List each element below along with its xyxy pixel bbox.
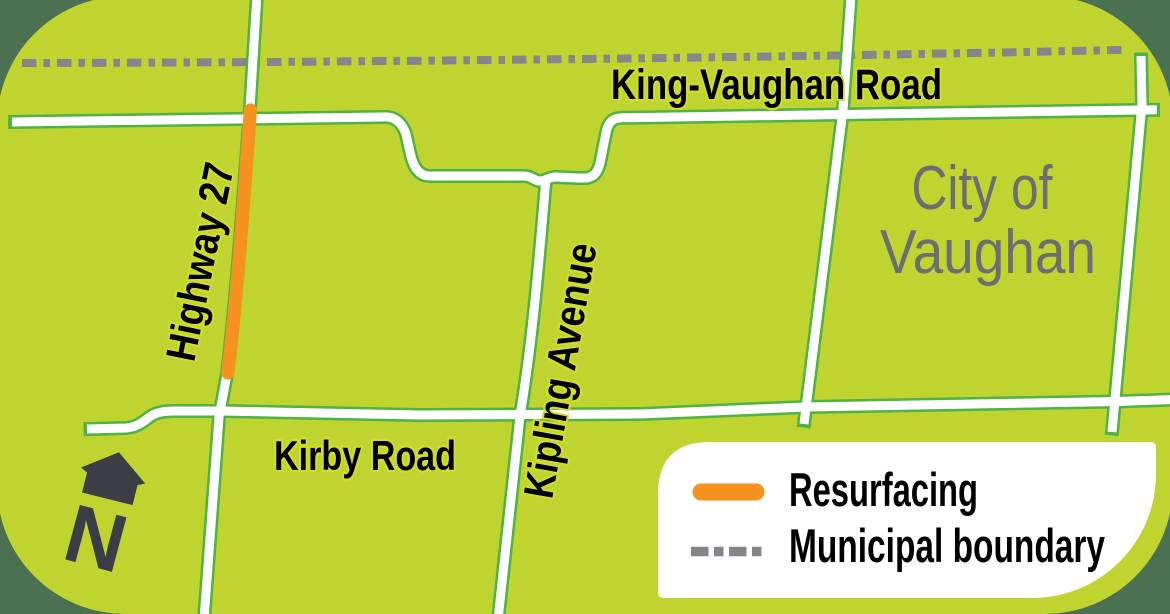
svg-text:Vaughan: Vaughan xyxy=(880,218,1096,287)
svg-text:Municipal boundary: Municipal boundary xyxy=(789,519,1105,572)
svg-text:Resurfacing: Resurfacing xyxy=(789,463,978,516)
svg-text:King-Vaughan Road: King-Vaughan Road xyxy=(611,61,942,109)
svg-text:City of: City of xyxy=(912,154,1054,223)
svg-text:Kirby Road: Kirby Road xyxy=(274,432,456,479)
